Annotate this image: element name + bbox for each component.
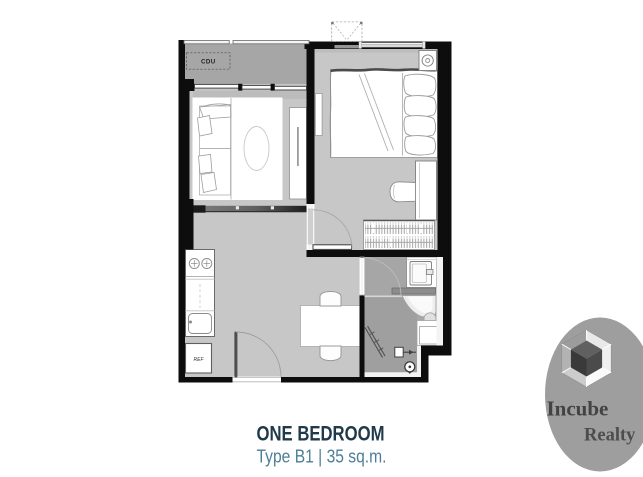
svg-text:Realty: Realty xyxy=(584,426,636,446)
svg-text:Type B1 | 35 sq.m.: Type B1 | 35 sq.m. xyxy=(257,446,387,467)
svg-text:ONE BEDROOM: ONE BEDROOM xyxy=(257,423,385,446)
svg-text:REF: REF xyxy=(194,357,205,363)
svg-text:CDU: CDU xyxy=(201,58,216,65)
svg-text:Incube: Incube xyxy=(547,397,609,421)
